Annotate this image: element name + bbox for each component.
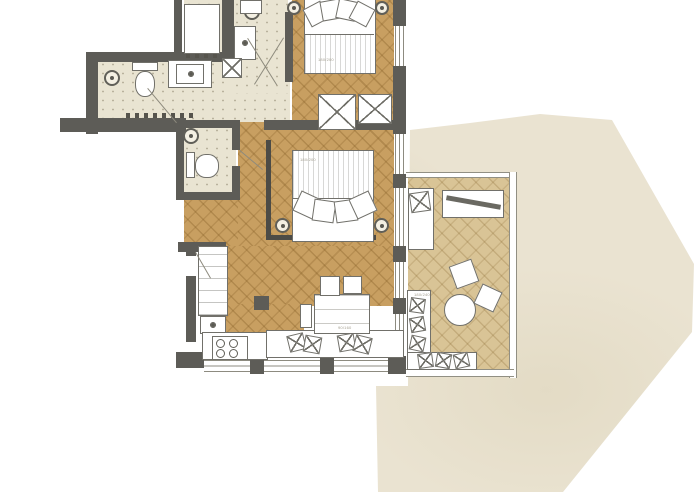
oven-knob bbox=[210, 322, 216, 328]
plank-table bbox=[442, 190, 504, 218]
wall-segment bbox=[393, 0, 406, 26]
toilet-tank bbox=[186, 152, 195, 178]
bed-middle-label: 180/200 bbox=[300, 158, 316, 162]
wall-segment bbox=[174, 0, 182, 56]
headboard-partition bbox=[266, 140, 271, 240]
chair bbox=[320, 276, 340, 296]
wall-segment bbox=[285, 12, 293, 82]
wall-segment bbox=[393, 246, 406, 262]
window bbox=[395, 262, 404, 298]
burner bbox=[229, 339, 238, 348]
terrace-frame-right bbox=[509, 172, 517, 378]
nightstand-lamp bbox=[275, 218, 290, 233]
wardrobe bbox=[318, 94, 356, 130]
wall-segment bbox=[393, 298, 406, 314]
counter bbox=[240, 0, 262, 14]
bench-pillow bbox=[303, 335, 323, 355]
plank bbox=[446, 195, 501, 209]
terrace-frame-bottom bbox=[406, 369, 514, 377]
sofa-pillow bbox=[417, 352, 434, 369]
shaft bbox=[222, 58, 242, 78]
window bbox=[395, 26, 404, 66]
nightstand-lamp bbox=[374, 218, 389, 233]
window bbox=[395, 134, 404, 174]
threshold-dashes bbox=[126, 113, 198, 118]
sofa-pillow bbox=[409, 316, 426, 333]
tall-cabinets bbox=[198, 246, 228, 316]
window bbox=[395, 188, 404, 246]
lounge-pillow bbox=[409, 191, 432, 214]
faucet bbox=[188, 71, 194, 77]
nightstand-lamp bbox=[375, 1, 389, 15]
burner bbox=[216, 349, 225, 358]
threshold-dashes bbox=[186, 54, 218, 58]
pillar bbox=[320, 356, 334, 374]
round-table bbox=[444, 294, 476, 326]
nightstand-lamp bbox=[287, 1, 301, 15]
chair bbox=[300, 304, 312, 328]
wall-segment bbox=[232, 166, 240, 198]
window-band bbox=[204, 360, 394, 372]
sofa-pillow bbox=[453, 352, 471, 370]
wall-segment bbox=[60, 118, 186, 132]
toilet-bowl bbox=[195, 154, 219, 178]
sofa-pillow bbox=[409, 335, 427, 353]
terrace-frame-top bbox=[406, 172, 514, 178]
burner bbox=[229, 349, 238, 358]
wall-segment bbox=[393, 66, 406, 134]
wall-segment bbox=[232, 120, 240, 150]
dining-table-label: 90/160 bbox=[338, 326, 351, 330]
corner-sofa-label: 180/240 bbox=[414, 293, 430, 297]
column bbox=[254, 296, 269, 310]
wall-segment bbox=[176, 192, 240, 200]
wall-segment bbox=[222, 0, 234, 58]
shower-tray bbox=[184, 4, 220, 54]
toilet-tank bbox=[132, 62, 158, 71]
window-bench bbox=[266, 330, 404, 358]
wall-segment bbox=[393, 174, 406, 188]
hall-lower-floor bbox=[184, 198, 238, 248]
bed-top-label: 180/200 bbox=[318, 58, 334, 62]
pillar bbox=[388, 356, 406, 374]
sofa-pillow bbox=[409, 297, 426, 314]
sofa-pillow bbox=[435, 352, 452, 369]
wall-segment bbox=[176, 120, 238, 128]
faucet bbox=[242, 40, 248, 46]
wall-segment bbox=[186, 276, 196, 342]
bed-top-blanket bbox=[305, 34, 374, 73]
floor-drain bbox=[104, 70, 120, 86]
floor-plan: 180/200 180/200 90/ bbox=[0, 0, 700, 500]
wall-segment bbox=[186, 242, 196, 256]
chair bbox=[343, 276, 362, 294]
wardrobe bbox=[358, 94, 392, 124]
burner bbox=[216, 339, 225, 348]
round-sink bbox=[183, 128, 199, 144]
